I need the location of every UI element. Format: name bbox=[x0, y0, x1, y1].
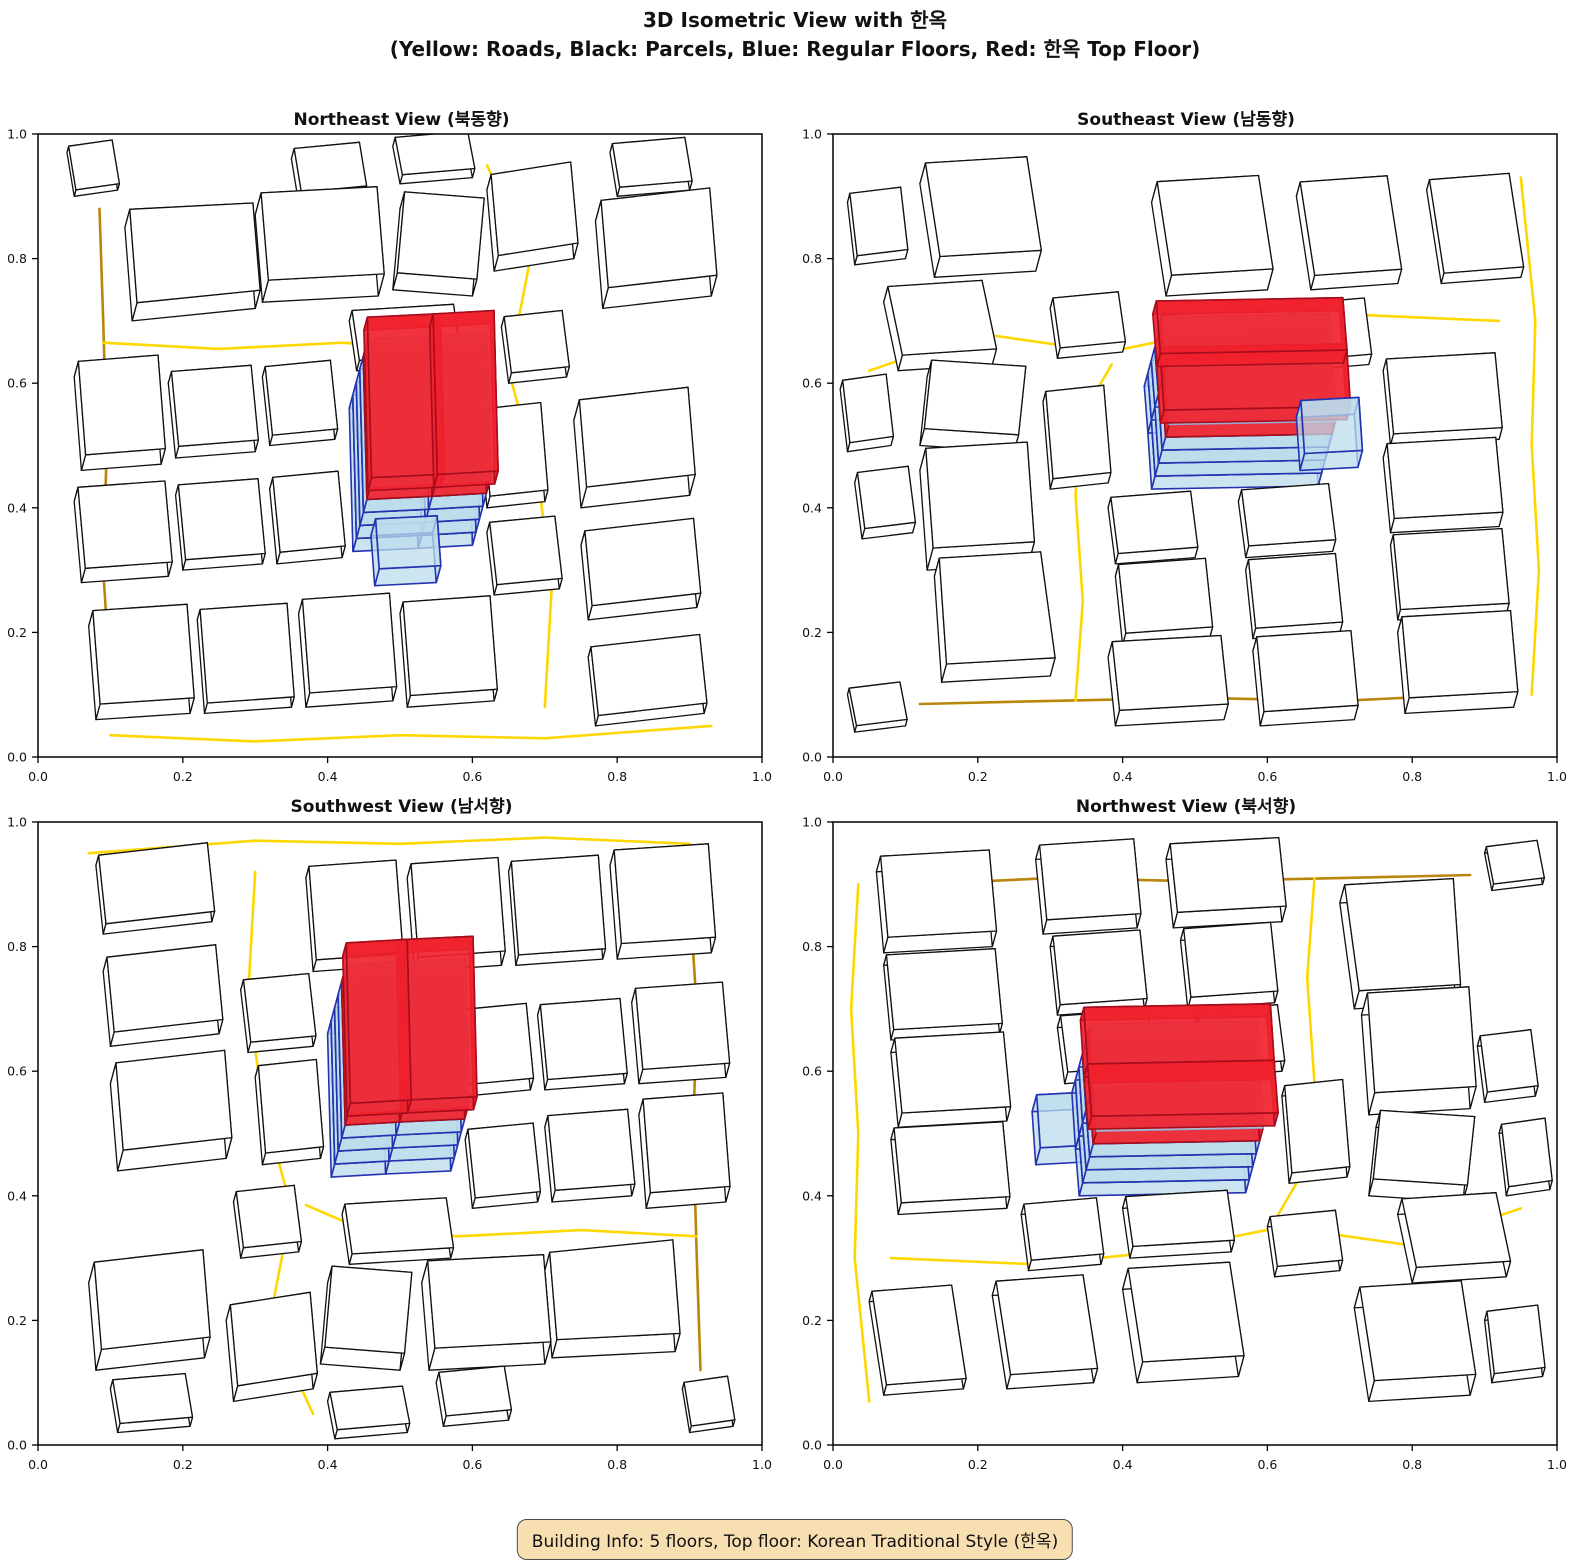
panel-northwest-plot: 0.00.00.20.20.40.40.60.60.80.81.01.0 bbox=[781, 808, 1581, 1488]
panel-southwest-plot: 0.00.00.20.20.40.40.60.60.80.81.01.0 bbox=[0, 808, 786, 1488]
x-tick-label: 0.2 bbox=[968, 1457, 988, 1472]
x-tick-label: 0.6 bbox=[462, 769, 482, 784]
y-tick-label: 0.0 bbox=[7, 1438, 27, 1453]
panel-southeast-plot: 0.00.00.20.20.40.40.60.60.80.81.01.0 bbox=[781, 120, 1581, 800]
y-tick-label: 0.2 bbox=[7, 625, 27, 640]
y-tick-label: 0.8 bbox=[802, 939, 822, 954]
y-tick-label: 0.8 bbox=[802, 251, 822, 266]
x-tick-label: 1.0 bbox=[1547, 1457, 1567, 1472]
x-tick-label: 0.0 bbox=[823, 1457, 843, 1472]
x-tick-label: 0.6 bbox=[462, 1457, 482, 1472]
x-tick-label: 0.0 bbox=[28, 1457, 48, 1472]
y-tick-label: 0.0 bbox=[802, 750, 822, 765]
x-tick-label: 0.0 bbox=[28, 769, 48, 784]
x-tick-label: 0.8 bbox=[607, 769, 627, 784]
y-tick-label: 0.4 bbox=[802, 500, 822, 515]
x-tick-label: 0.4 bbox=[1113, 769, 1133, 784]
x-tick-label: 0.2 bbox=[173, 1457, 193, 1472]
x-tick-label: 1.0 bbox=[752, 1457, 772, 1472]
figure-title-line1: 3D Isometric View with 한옥 bbox=[0, 6, 1590, 35]
y-tick-label: 0.0 bbox=[7, 750, 27, 765]
x-tick-label: 0.4 bbox=[1113, 1457, 1133, 1472]
y-tick-label: 0.4 bbox=[7, 500, 27, 515]
y-tick-label: 1.0 bbox=[7, 127, 27, 142]
y-tick-label: 0.2 bbox=[802, 1313, 822, 1328]
y-tick-label: 0.6 bbox=[802, 376, 822, 391]
x-tick-label: 0.4 bbox=[318, 1457, 338, 1472]
x-tick-label: 0.4 bbox=[318, 769, 338, 784]
y-tick-label: 0.4 bbox=[802, 1188, 822, 1203]
y-tick-label: 0.2 bbox=[802, 625, 822, 640]
x-tick-label: 1.0 bbox=[1547, 769, 1567, 784]
x-tick-label: 0.6 bbox=[1257, 1457, 1277, 1472]
y-tick-label: 1.0 bbox=[802, 127, 822, 142]
figure-title: 3D Isometric View with 한옥 (Yellow: Roads… bbox=[0, 6, 1590, 64]
figure-title-line2: (Yellow: Roads, Black: Parcels, Blue: Re… bbox=[0, 35, 1590, 64]
y-tick-label: 1.0 bbox=[7, 815, 27, 830]
y-tick-label: 0.4 bbox=[7, 1188, 27, 1203]
x-tick-label: 0.8 bbox=[1402, 769, 1422, 784]
y-tick-label: 0.6 bbox=[7, 1064, 27, 1079]
x-tick-label: 0.2 bbox=[968, 769, 988, 784]
x-tick-label: 0.8 bbox=[607, 1457, 627, 1472]
building-info-caption: Building Info: 5 floors, Top floor: Kore… bbox=[517, 1519, 1073, 1560]
y-tick-label: 1.0 bbox=[802, 815, 822, 830]
y-tick-label: 0.6 bbox=[7, 376, 27, 391]
x-tick-label: 0.0 bbox=[823, 769, 843, 784]
x-tick-label: 0.8 bbox=[1402, 1457, 1422, 1472]
y-tick-label: 0.8 bbox=[7, 251, 27, 266]
y-tick-label: 0.0 bbox=[802, 1438, 822, 1453]
building-info-text: Building Info: 5 floors, Top floor: Kore… bbox=[532, 1532, 1058, 1552]
x-tick-label: 1.0 bbox=[752, 769, 772, 784]
y-tick-label: 0.8 bbox=[7, 939, 27, 954]
x-tick-label: 0.6 bbox=[1257, 769, 1277, 784]
x-tick-label: 0.2 bbox=[173, 769, 193, 784]
panel-northeast-plot: 0.00.00.20.20.40.40.60.60.80.81.01.0 bbox=[0, 120, 786, 800]
y-tick-label: 0.6 bbox=[802, 1064, 822, 1079]
y-tick-label: 0.2 bbox=[7, 1313, 27, 1328]
